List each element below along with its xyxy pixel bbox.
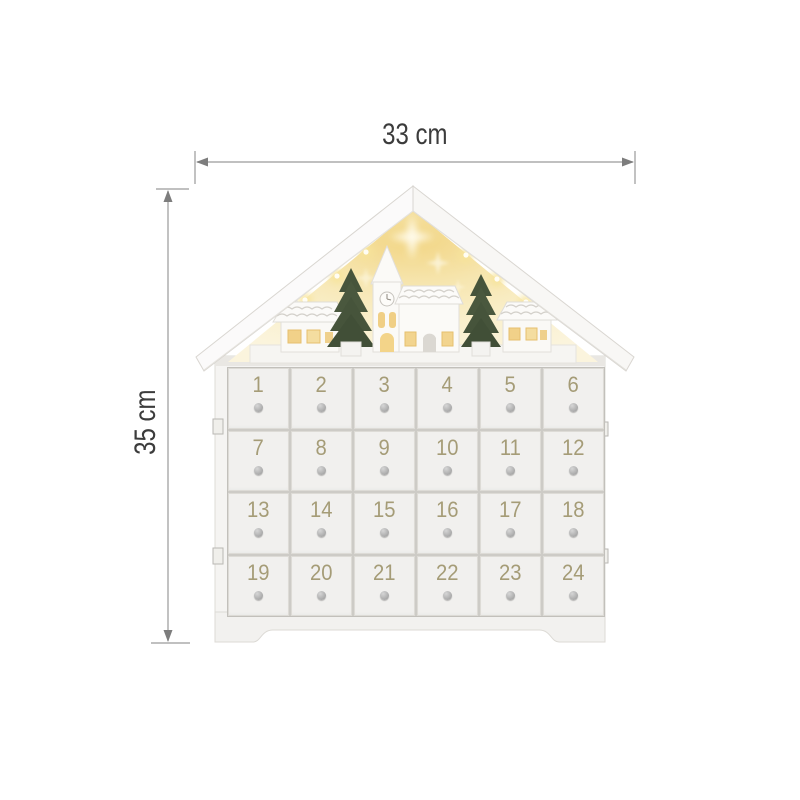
drawer-number: 13 [247,498,270,522]
drawer-knob-icon [506,403,515,412]
drawer-6: 6 [543,368,604,429]
drawer-knob-icon [569,403,578,412]
drawer-number: 23 [499,561,522,585]
drawer-20: 20 [291,556,352,617]
width-dimension-label: 33 cm [345,118,485,152]
drawer-number: 21 [373,561,396,585]
drawer-knob-icon [506,466,515,475]
drawer-number: 10 [436,436,459,460]
height-dimension-label: 35 cm [129,352,163,492]
drawer-number: 11 [500,436,521,460]
drawer-knob-icon [317,591,326,600]
drawer-knob-icon [443,528,452,537]
drawer-knob-icon [254,466,263,475]
drawer-23: 23 [480,556,541,617]
drawer-21: 21 [354,556,415,617]
drawer-17: 17 [480,493,541,554]
drawer-12: 12 [543,431,604,492]
drawer-14: 14 [291,493,352,554]
drawer-number: 5 [505,373,516,397]
drawer-knob-icon [443,403,452,412]
drawer-7: 7 [228,431,289,492]
drawer-knob-icon [380,528,389,537]
drawer-number: 24 [562,561,585,585]
drawer-16: 16 [417,493,478,554]
drawer-9: 9 [354,431,415,492]
drawer-grid: 123456789101112131415161718192021222324 [227,367,605,617]
drawer-number: 12 [562,436,585,460]
drawer-22: 22 [417,556,478,617]
drawer-knob-icon [569,591,578,600]
width-value: 33 cm [382,118,447,152]
drawer-number: 7 [253,436,264,460]
drawer-15: 15 [354,493,415,554]
height-value: 35 cm [129,389,163,454]
drawer-number: 15 [373,498,396,522]
drawer-number: 16 [436,498,459,522]
drawer-number: 20 [310,561,333,585]
drawer-knob-icon [380,466,389,475]
drawer-knob-icon [443,466,452,475]
width-dimension-line [195,151,635,184]
drawer-number: 1 [253,373,264,397]
drawer-number: 6 [568,373,579,397]
drawer-knob-icon [254,403,263,412]
drawer-number: 17 [499,498,522,522]
drawer-number: 2 [316,373,327,397]
drawer-knob-icon [380,403,389,412]
drawer-number: 14 [310,498,333,522]
drawer-knob-icon [254,528,263,537]
drawer-number: 18 [562,498,585,522]
drawer-knob-icon [317,528,326,537]
drawer-knob-icon [506,528,515,537]
drawer-10: 10 [417,431,478,492]
drawer-4: 4 [417,368,478,429]
drawer-knob-icon [380,591,389,600]
drawer-knob-icon [569,528,578,537]
drawer-number: 9 [379,436,390,460]
drawer-number: 8 [316,436,327,460]
drawer-number: 22 [436,561,459,585]
drawer-11: 11 [480,431,541,492]
drawer-8: 8 [291,431,352,492]
drawer-knob-icon [569,466,578,475]
drawer-13: 13 [228,493,289,554]
drawer-knob-icon [443,591,452,600]
product-image: 33 cm 35 cm 1234567891011121314151617181… [0,0,800,800]
drawer-knob-icon [317,466,326,475]
drawer-5: 5 [480,368,541,429]
drawer-3: 3 [354,368,415,429]
drawer-24: 24 [543,556,604,617]
drawer-1: 1 [228,368,289,429]
drawer-number: 4 [442,373,453,397]
drawer-knob-icon [254,591,263,600]
drawer-knob-icon [317,403,326,412]
drawer-number: 3 [379,373,390,397]
drawer-18: 18 [543,493,604,554]
drawer-knob-icon [506,591,515,600]
drawer-2: 2 [291,368,352,429]
drawer-number: 19 [247,561,270,585]
drawer-19: 19 [228,556,289,617]
